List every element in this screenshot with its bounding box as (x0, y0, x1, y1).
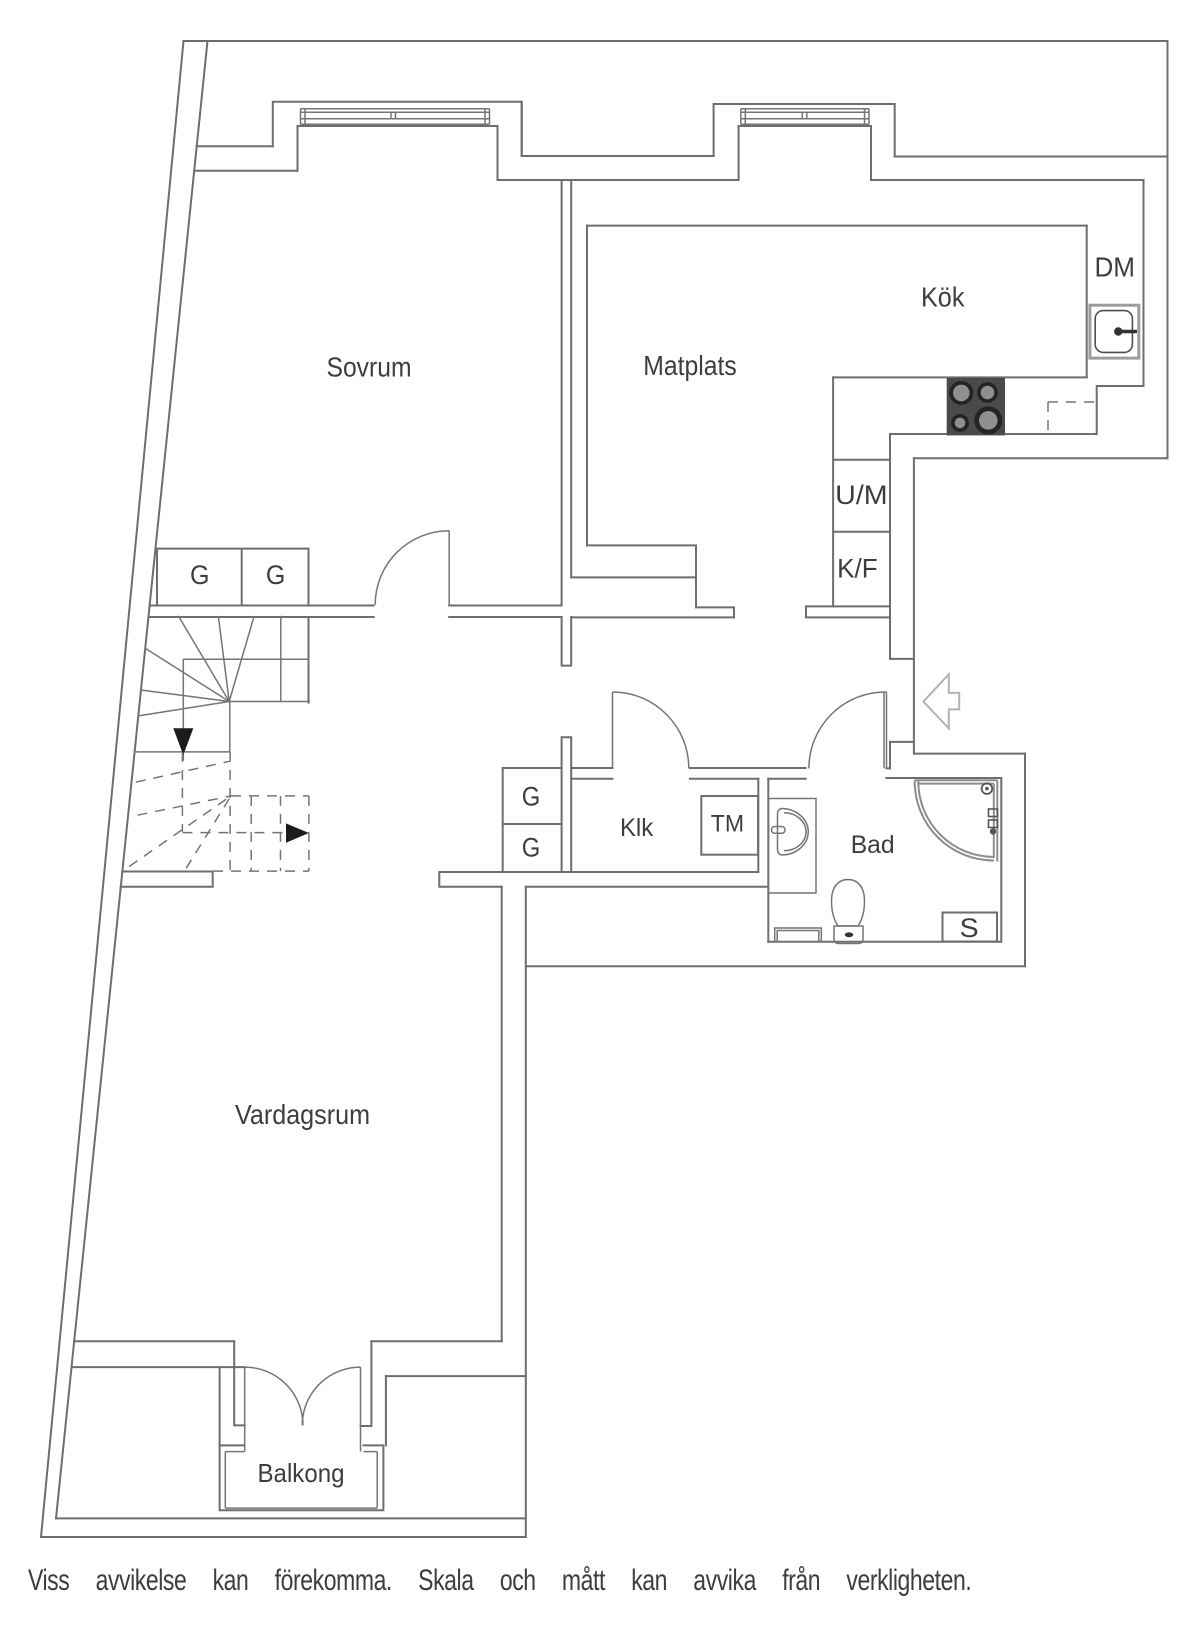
svg-text:G: G (522, 832, 541, 862)
svg-text:S: S (960, 913, 979, 943)
svg-text:Klk: Klk (620, 814, 654, 842)
svg-text:Sovrum: Sovrum (327, 352, 412, 383)
svg-text:K/F: K/F (837, 553, 878, 583)
svg-text:U/M: U/M (835, 480, 888, 510)
svg-text:Viss avvikelse kan förekomma.: Viss avvikelse kan förekomma. Skala och … (28, 1563, 972, 1596)
svg-text:Matplats: Matplats (643, 350, 737, 381)
svg-text:Kök: Kök (921, 282, 965, 313)
svg-text:G: G (266, 560, 286, 590)
svg-text:G: G (522, 782, 541, 812)
svg-text:G: G (190, 560, 210, 590)
svg-text:DM: DM (1094, 252, 1135, 283)
svg-text:Balkong: Balkong (258, 1458, 345, 1488)
svg-text:Bad: Bad (851, 831, 895, 859)
svg-text:TM: TM (711, 811, 744, 838)
svg-text:Vardagsrum: Vardagsrum (235, 1099, 370, 1130)
